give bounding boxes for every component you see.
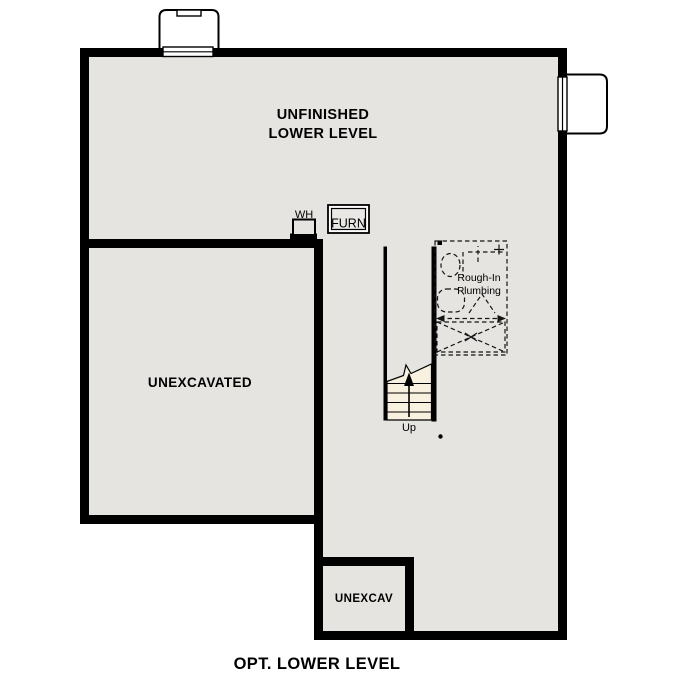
unexcavated-label: UNEXCAVATED <box>148 375 252 390</box>
main-room-label-line2: LOWER LEVEL <box>268 126 377 142</box>
stair-right-wall <box>432 247 437 422</box>
water-heater-label: WH <box>295 209 313 221</box>
top-window-well-notch <box>177 10 201 16</box>
right-wall-upper <box>558 48 567 77</box>
rough-in-label-line1: Rough-In <box>457 272 500 284</box>
right-window-well <box>567 75 607 134</box>
right-wall-lower <box>558 131 567 640</box>
rough-in-label-line2: Plumbing <box>457 285 501 297</box>
water-heater-box <box>293 220 315 236</box>
unexcav-label: UNEXCAV <box>335 593 393 605</box>
stairs-up-label: Up <box>402 422 416 434</box>
floor-drain-dot <box>438 434 442 438</box>
unexcav-top-wall <box>314 557 414 566</box>
center-vertical-wall <box>314 239 323 640</box>
floorplan-canvas: UNFINISHED LOWER LEVEL UNEXCAVATED UNEXC… <box>0 0 687 687</box>
furnace-label: FURN <box>331 217 366 231</box>
unexcav-right-wall <box>405 557 414 640</box>
unexcavated-top-wall <box>80 239 323 248</box>
main-room-label-line1: UNFINISHED <box>277 107 370 123</box>
plan-title: OPT. LOWER LEVEL <box>234 655 401 673</box>
left-wall <box>80 48 89 524</box>
top-wall-left <box>80 48 163 57</box>
unexcavated-bottom-wall <box>80 515 323 524</box>
top-wall-right <box>213 48 567 57</box>
bottom-wall <box>314 631 567 640</box>
floorplan-svg: UNFINISHED LOWER LEVEL UNEXCAVATED UNEXC… <box>0 0 687 687</box>
